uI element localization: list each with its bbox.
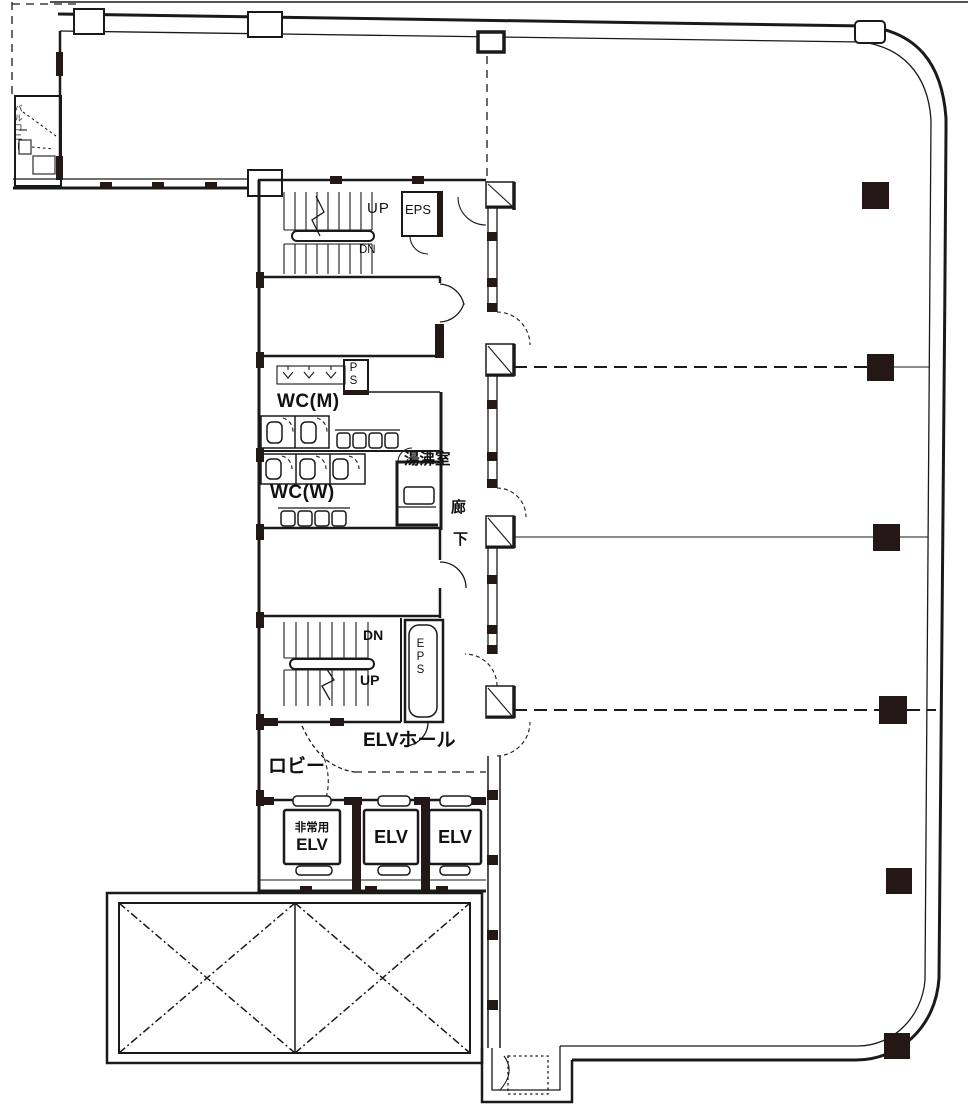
floor-plan-linework <box>0 0 971 1117</box>
corridor-label-char2: 下 <box>453 532 468 547</box>
emergency-elevator-cab: 非常用 ELV <box>284 810 340 864</box>
kitchenette-label: 湯沸室 <box>404 452 451 468</box>
corridor-column <box>486 516 514 548</box>
corridor-column <box>486 344 514 376</box>
stair-bottom-up-label: UP <box>360 673 379 687</box>
lobby-label: ロビー <box>268 757 325 776</box>
structural-columns <box>862 182 912 1059</box>
wc-men-label: WC(M) <box>277 392 340 411</box>
property-line-dashed <box>12 2 76 96</box>
machine-room <box>258 277 464 358</box>
pipe-shaft-label: PS <box>347 362 359 388</box>
elevator-3-label: ELV <box>438 827 472 848</box>
corridor-label-char1: 廊 <box>451 500 466 515</box>
elevator-3-cab: ELV <box>429 810 481 864</box>
stair-top-dn-label: DN <box>359 245 376 257</box>
grid-lines <box>514 367 936 710</box>
void-block <box>107 893 482 1063</box>
balcony-label: バルコニー <box>14 104 23 152</box>
elevator-2-label: ELV <box>374 827 408 848</box>
eps-bottom-label: EPS <box>414 638 426 677</box>
floor-plan: バルコニー UP EPS DN PS WC(M) 湯沸室 WC(W) 廊 下 D… <box>0 0 971 1117</box>
eps-top-label: EPS <box>405 203 431 216</box>
corridor-column <box>486 686 514 718</box>
stair-top-up-label: UP <box>367 201 390 216</box>
core-walls <box>256 176 486 893</box>
emergency-elevator-label-line2: ELV <box>296 835 328 855</box>
elevator-2-cab: ELV <box>364 810 418 864</box>
stair-bottom-dn-label: DN <box>363 628 383 642</box>
elevator-hall-label: ELVホール <box>363 731 456 750</box>
exit-vestibule <box>482 1046 572 1102</box>
emergency-elevator-label-line1: 非常用 <box>295 819 330 835</box>
wc-women-label: WC(W) <box>270 483 335 502</box>
storage-room <box>258 528 466 618</box>
corridor-column <box>486 182 514 210</box>
